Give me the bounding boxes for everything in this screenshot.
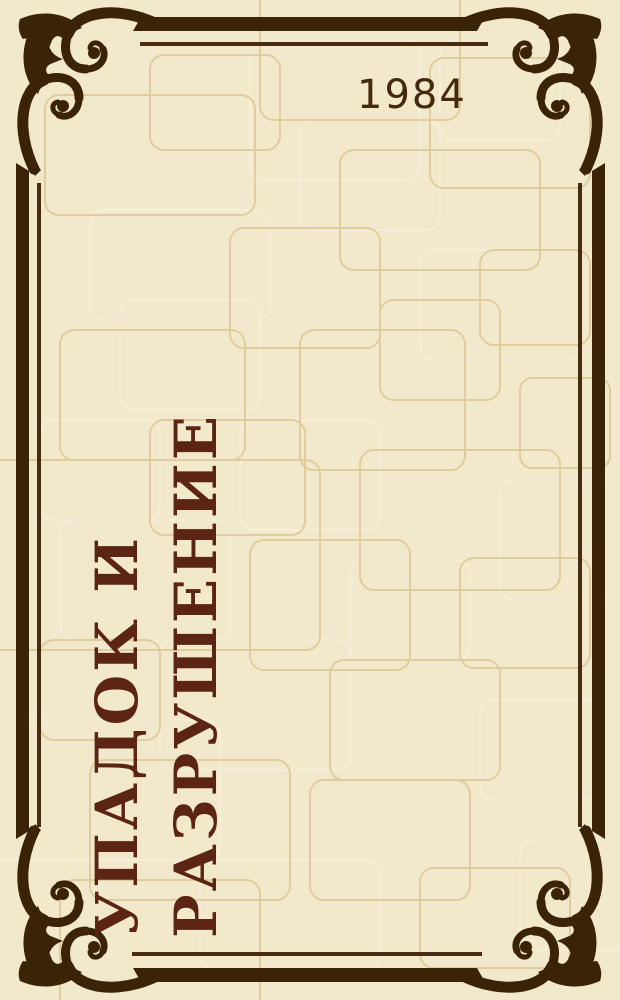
frame-right-thick-bar [592,163,605,839]
frame-bottom-thick-bar [133,968,485,982]
frame-top-thick-bar [133,17,485,31]
frame-left-thin-line [37,183,41,827]
title-line-1: УПАДОК И [78,403,157,938]
year-label: 1984 [357,72,467,118]
frame-left-thick-bar [16,163,29,839]
frame-right-thin-line [578,183,582,827]
book-cover: 1984 УПАДОК И РАЗРУШЕНИЕ [0,0,620,1000]
scroll-ornament-bottom-right-icon [414,794,614,994]
frame-bottom-thin-line [132,952,482,956]
frame-top-thin-line [140,42,488,46]
scroll-ornament-top-left-icon [6,6,206,206]
book-title: УПАДОК И РАЗРУШЕНИЕ [78,403,238,938]
title-line-2: РАЗРУШЕНИЕ [157,403,236,938]
